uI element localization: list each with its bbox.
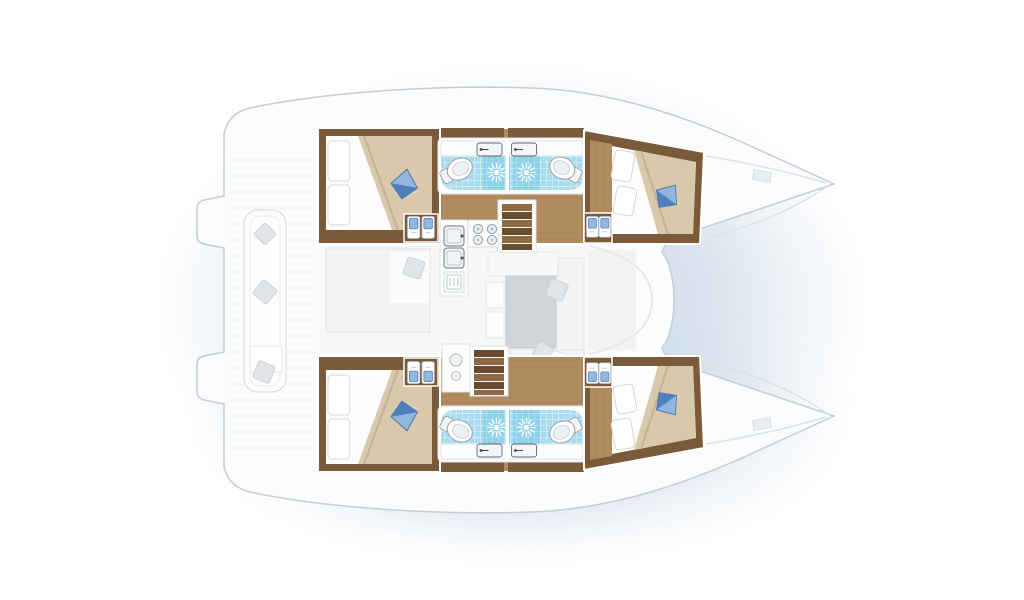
galley-sink — [444, 226, 464, 246]
stair-tread — [474, 366, 504, 373]
stair-tread — [502, 228, 532, 235]
seat-cushion — [486, 282, 504, 308]
galley-cabinet — [444, 272, 464, 292]
stair-tread — [474, 358, 504, 365]
galley-sink — [444, 248, 464, 268]
stairs-port — [498, 200, 536, 252]
stair-tread — [474, 390, 504, 395]
seat-cushion — [486, 312, 504, 338]
stair-tread — [502, 204, 532, 211]
salon-forward-sofa — [326, 248, 430, 332]
galley-stove — [468, 220, 502, 247]
stairs-starboard — [470, 346, 508, 396]
floorplan-page: Catamaran yacht interior layout floor pl… — [0, 0, 1024, 600]
stair-tread — [474, 350, 504, 357]
nav-cabinet — [442, 344, 470, 392]
stair-tread — [502, 244, 532, 250]
stair-tread — [502, 220, 532, 227]
stair-tread — [502, 236, 532, 243]
dinette-seat — [558, 258, 584, 352]
floorplan-svg: Catamaran yacht interior layout floor pl… — [0, 0, 1024, 600]
cockpit-bench — [244, 210, 286, 392]
stair-tread — [474, 382, 504, 389]
stair-tread — [474, 374, 504, 381]
stair-tread — [502, 212, 532, 219]
side-deck-walkway — [588, 250, 636, 350]
dinette-seat — [488, 252, 558, 276]
